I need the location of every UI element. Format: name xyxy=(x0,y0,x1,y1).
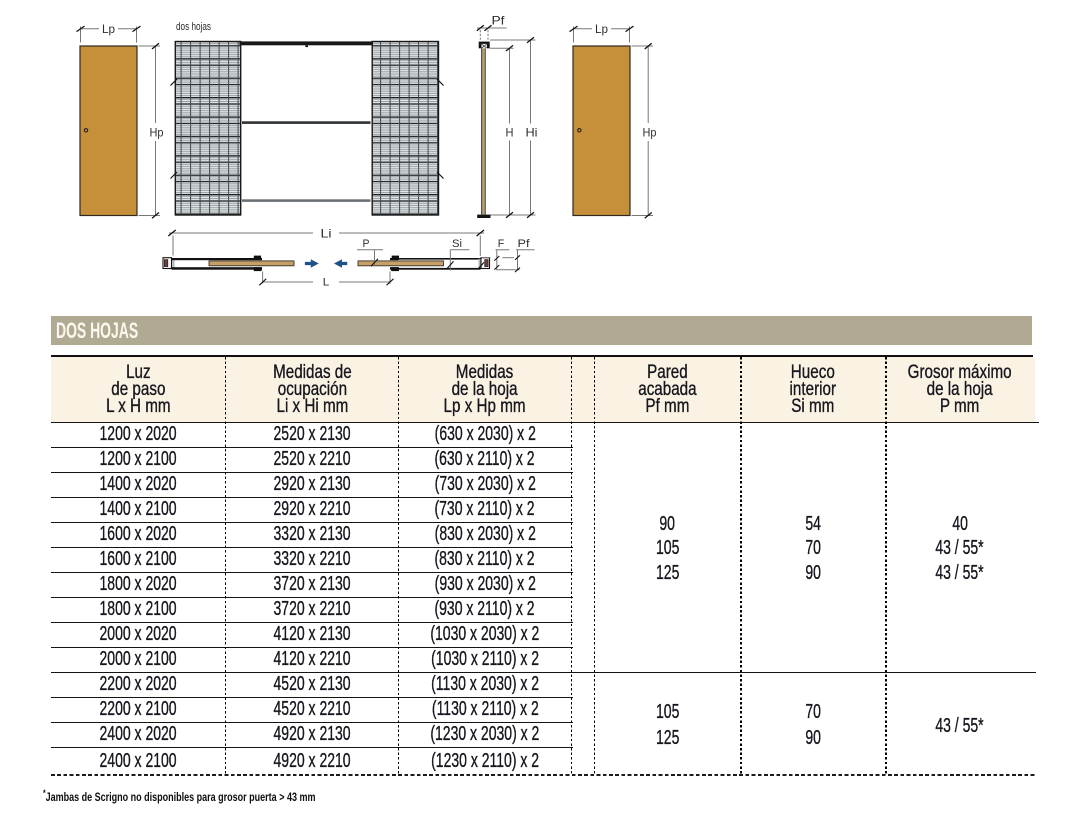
svg-text:Lp: Lp xyxy=(595,22,608,36)
svg-text:Pf: Pf xyxy=(492,14,506,28)
svg-text:L: L xyxy=(323,277,330,289)
svg-text:Hp: Hp xyxy=(150,126,164,140)
svg-text:H: H xyxy=(506,125,514,139)
svg-text:Si: Si xyxy=(452,238,462,250)
svg-text:Lp: Lp xyxy=(102,22,115,36)
svg-text:F: F xyxy=(498,238,505,250)
svg-text:Pf: Pf xyxy=(518,238,531,250)
svg-text:Li: Li xyxy=(321,226,332,240)
svg-text:dos hojas: dos hojas xyxy=(176,21,211,33)
svg-text:P: P xyxy=(363,238,370,250)
svg-text:Hi: Hi xyxy=(526,125,538,139)
svg-text:Hp: Hp xyxy=(643,126,657,140)
